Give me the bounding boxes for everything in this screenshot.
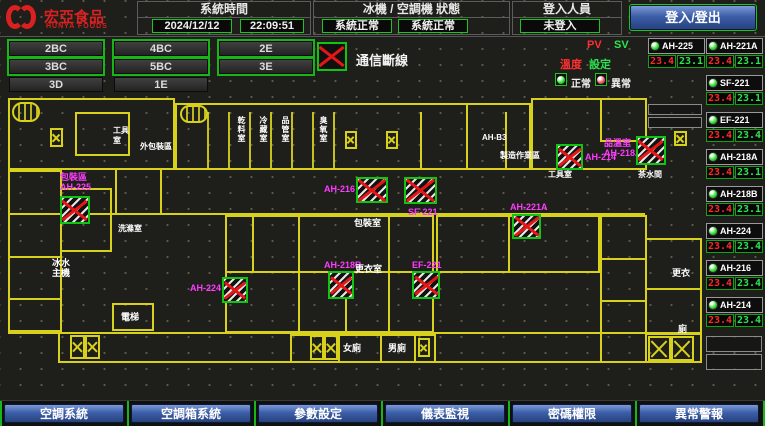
system-date-value: 2024/12/12 — [152, 19, 232, 33]
room-label: 外包裝區 — [140, 142, 172, 152]
sv-value: 23.1 — [677, 55, 705, 68]
sidebar-unit-ah-225: AH-225 23.423.1 — [648, 38, 705, 68]
wall — [600, 300, 647, 302]
sidebar-unit-ah-218a: AH-218A 23.423.1 — [706, 149, 763, 179]
floor-button-4bc[interactable]: 4BC — [114, 41, 208, 56]
hmi-screen: 宏亞食品 HUNYA FOODS 系統時間 2024/12/12 22:09:5… — [0, 0, 765, 426]
pv-value: 23.4 — [648, 55, 676, 68]
shaft-x-icon — [671, 336, 694, 361]
equipment-button[interactable]: AH-224 — [706, 223, 763, 239]
unit-label: EF-221 — [412, 260, 442, 270]
normal-label: 正常 — [571, 75, 591, 90]
shaft-x-icon — [674, 131, 687, 146]
equipment-button[interactable]: EF-221 — [706, 112, 763, 128]
pv-value: 23.4 — [706, 55, 734, 68]
wall — [380, 334, 382, 363]
pv-value: 23.4 — [706, 277, 734, 290]
nav-separator — [254, 401, 256, 426]
room-label: 更衣室 — [355, 264, 382, 274]
logo-ring-right-icon — [18, 5, 36, 29]
pv-value: 23.4 — [706, 92, 734, 105]
nav-separator — [0, 401, 2, 426]
sv-value: 23.1 — [735, 166, 763, 179]
nav-button-parameter-set[interactable]: 參數設定 — [258, 404, 378, 423]
wall — [600, 215, 647, 363]
wall — [338, 334, 340, 363]
sidebar-unit-ah-214: AH-214 23.423.4 — [706, 297, 763, 327]
comm-fail-box[interactable] — [328, 271, 354, 299]
nav-button-password-auth[interactable]: 密碼權限 — [512, 404, 632, 423]
room-label: 茶水間 — [638, 170, 662, 180]
equipment-button[interactable]: AH-225 — [648, 38, 705, 54]
sidebar-empty-slot — [706, 336, 762, 352]
shaft-x-icon — [310, 335, 324, 360]
room-label: 男廁 — [388, 343, 406, 353]
equipment-button[interactable]: AH-218A — [706, 149, 763, 165]
status-led-icon — [708, 152, 718, 162]
floor-button-3e[interactable]: 3E — [219, 59, 313, 74]
login-title: 登入人員 — [513, 2, 621, 18]
status-led-icon — [708, 226, 718, 236]
sv-value: 23.1 — [735, 55, 763, 68]
equipment-id: AH-214 — [720, 300, 751, 310]
equipment-button[interactable]: AH-221A — [706, 38, 763, 54]
nav-separator — [635, 401, 637, 426]
nav-separator — [508, 401, 510, 426]
comm-fail-box[interactable] — [636, 136, 666, 165]
unit-label: AH-224 — [190, 283, 221, 293]
system-clock-value: 22:09:51 — [240, 19, 304, 33]
sidebar-unit-ah-224: AH-224 23.423.4 — [706, 223, 763, 253]
pv-value: 23.4 — [706, 203, 734, 216]
wall — [414, 334, 416, 363]
floor-button-1e[interactable]: 1E — [114, 77, 208, 92]
shaft-x-icon — [418, 338, 430, 357]
room-label: 女廁 — [343, 343, 361, 353]
status-led-icon — [708, 300, 718, 310]
machine-status-title: 冰機 / 空調機 狀態 — [314, 2, 509, 18]
status-led-icon — [708, 115, 718, 125]
sv-header: SV — [614, 39, 629, 51]
sv-value: 23.4 — [735, 314, 763, 327]
normal-led-icon — [555, 73, 567, 86]
stairs-icon — [180, 105, 208, 123]
equipment-button[interactable]: AH-216 — [706, 260, 763, 276]
shaft-x-icon — [345, 131, 357, 149]
unit-label: 包裝區 AH-225 — [60, 172, 91, 192]
floor-button-3d[interactable]: 3D — [9, 77, 103, 92]
nav-separator — [381, 401, 383, 426]
equipment-button[interactable]: AH-214 — [706, 297, 763, 313]
equipment-id: AH-225 — [662, 41, 693, 51]
login-status-value: 未登入 — [520, 19, 600, 33]
logo: 宏亞食品 HUNYA FOODS — [4, 2, 134, 34]
brand-subtitle: HUNYA FOODS — [46, 23, 108, 30]
unit-label: AH-216 — [324, 184, 355, 194]
status-led-icon — [708, 189, 718, 199]
sidebar-empty-slot — [648, 104, 702, 115]
unit-label: SF-221 — [408, 207, 438, 217]
comm-fail-box[interactable] — [412, 271, 440, 299]
login-logout-button[interactable]: 登入/登出 — [630, 5, 756, 30]
equipment-id: EF-221 — [720, 115, 750, 125]
pv-value: 23.4 — [706, 314, 734, 327]
wall — [600, 98, 602, 142]
abnormal-led-icon — [595, 73, 607, 86]
shaft-x-icon — [50, 128, 63, 147]
wall — [466, 103, 468, 170]
header-divider — [0, 36, 765, 37]
room-label: 冷藏室 — [258, 116, 268, 143]
temp-pv-label: 溫度 — [560, 56, 582, 72]
equipment-id: AH-221A — [720, 41, 758, 51]
wall — [8, 298, 62, 300]
sidebar-unit-ef-221: EF-221 23.423.4 — [706, 112, 763, 142]
shaft-x-icon — [648, 336, 671, 361]
comm-fail-box[interactable] — [512, 214, 541, 239]
room-label: 臭氧室 — [318, 116, 328, 143]
comm-fail-box[interactable] — [404, 177, 437, 204]
sidebar-unit-ah-218b: AH-218B 23.423.1 — [706, 186, 763, 216]
shaft-x-icon — [324, 335, 338, 360]
abnormal-label: 異常 — [611, 75, 631, 90]
sv-value: 23.1 — [735, 203, 763, 216]
equipment-id: AH-216 — [720, 263, 751, 273]
wall — [115, 170, 117, 215]
room-label: 更衣 — [672, 268, 690, 278]
comm-fail-box[interactable] — [222, 277, 248, 303]
room-label: 製造作業區 — [500, 151, 540, 161]
pv-value: 23.4 — [706, 129, 734, 142]
shaft-x-icon — [85, 335, 100, 359]
wall — [388, 215, 390, 333]
equipment-id: AH-218A — [720, 152, 758, 162]
equipment-id: AH-218B — [720, 189, 758, 199]
wall — [160, 170, 162, 215]
system-time-title: 系統時間 — [138, 2, 310, 18]
wall — [298, 215, 300, 333]
sv-value: 23.4 — [735, 240, 763, 253]
status-led-icon — [708, 263, 718, 273]
wall — [508, 215, 510, 273]
unit-label: AH-221A — [510, 202, 548, 212]
nav-button-ahu-system[interactable]: 空調箱系統 — [131, 404, 251, 423]
wall — [420, 112, 422, 168]
nav-button-meter-monitor[interactable]: 儀表監視 — [385, 404, 505, 423]
wall — [600, 258, 647, 260]
temp-sv-label: 設定 — [589, 56, 611, 72]
nav-separator — [127, 401, 129, 426]
sidebar-unit-sf-221: SF-221 23.423.1 — [706, 75, 763, 105]
ahu-status-value: 系統正常 — [398, 19, 468, 33]
sidebar-unit-ah-216: AH-216 23.423.4 — [706, 260, 763, 290]
room-label: 工具室 — [548, 170, 572, 180]
status-led-icon — [650, 41, 660, 51]
equipment-id: SF-221 — [720, 78, 750, 88]
status-led-icon — [708, 78, 718, 88]
sidebar-empty-slot — [648, 117, 702, 128]
sidebar-unit-ah-221a: AH-221A 23.423.1 — [706, 38, 763, 68]
comm-fail-box[interactable] — [60, 196, 90, 224]
equipment-button[interactable]: AH-218B — [706, 186, 763, 202]
room-label: 乾料室 — [236, 116, 246, 143]
sv-value: 23.4 — [735, 277, 763, 290]
sidebar-empty-slot — [706, 354, 762, 370]
pv-value: 23.4 — [706, 240, 734, 253]
wall — [58, 332, 60, 363]
wall — [252, 215, 254, 273]
status-led-icon — [708, 41, 718, 51]
wall — [645, 288, 702, 290]
room-label: 洗滌室 — [118, 224, 142, 234]
comm-fail-legend-label: 通信斷線 — [356, 50, 408, 69]
floor-button-2e[interactable]: 2E — [219, 41, 313, 56]
room-label: 廁 — [678, 324, 687, 334]
room-label: 包裝室 — [354, 218, 381, 228]
room-label: 冰水 主機 — [52, 258, 70, 278]
floor-button-5bc[interactable]: 5BC — [114, 59, 208, 74]
comm-fail-legend-icon — [317, 42, 347, 71]
pv-value: 23.4 — [706, 166, 734, 179]
equipment-button[interactable]: SF-221 — [706, 75, 763, 91]
floor-button-3bc[interactable]: 3BC — [9, 59, 103, 74]
floor-button-2bc[interactable]: 2BC — [9, 41, 103, 56]
shaft-x-icon — [70, 335, 85, 359]
comm-fail-box[interactable] — [356, 177, 388, 203]
room-label: 品管室 — [280, 116, 290, 143]
nav-button-hvac-system[interactable]: 空調系統 — [4, 404, 124, 423]
chiller-status-value: 系統正常 — [322, 19, 392, 33]
pv-header: PV — [587, 39, 602, 51]
room-label: 電梯 — [121, 312, 139, 322]
nav-button-alarm[interactable]: 異常警報 — [639, 404, 759, 423]
sv-value: 23.1 — [735, 92, 763, 105]
stairs-icon — [12, 102, 40, 122]
comm-fail-box[interactable] — [556, 144, 583, 170]
shaft-x-icon — [386, 131, 398, 149]
equipment-id: AH-224 — [720, 226, 751, 236]
room-label: 工具 室 — [113, 126, 129, 146]
room-label: AH-B3 — [482, 133, 506, 143]
sv-value: 23.4 — [735, 129, 763, 142]
wall — [8, 170, 62, 332]
